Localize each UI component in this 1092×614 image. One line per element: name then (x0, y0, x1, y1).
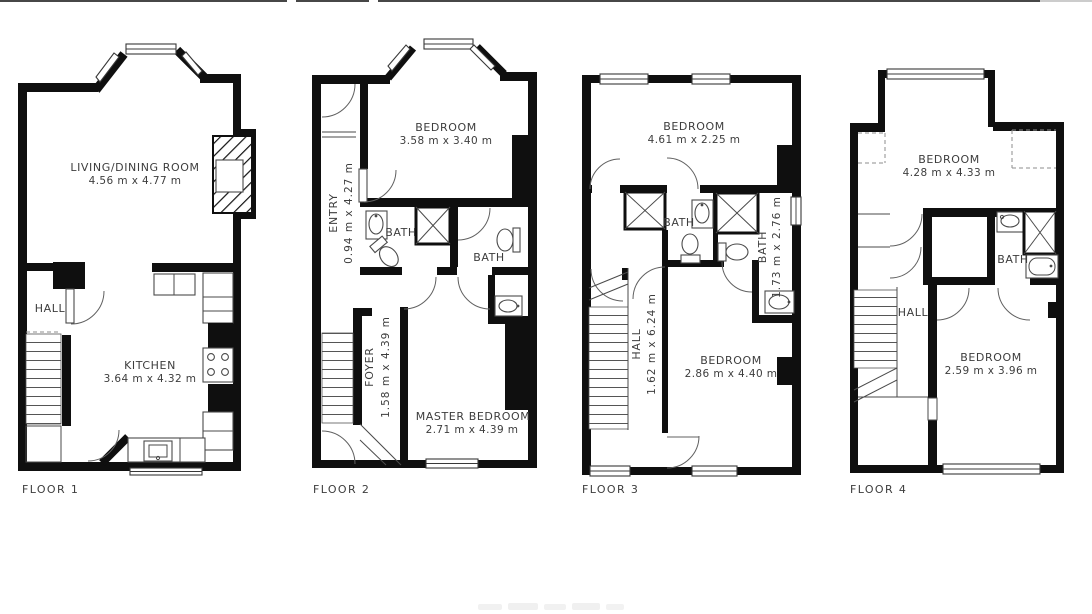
bedroom-dims: 3.58 m x 3.40 m (400, 135, 493, 147)
toilet-icon (370, 236, 402, 270)
bedroom-dims: 4.28 m x 4.33 m (903, 167, 996, 179)
bath-label: BATH (756, 231, 769, 263)
bath-label: BATH (385, 226, 417, 239)
floor-plan-canvas: LIVING/DINING ROOM 4.56 m x 4.77 m HALL … (0, 0, 1092, 614)
stairs (589, 268, 628, 430)
bath-dims: 1.73 m x 2.76 m (771, 196, 783, 298)
bedroom-dims: 2.86 m x 4.40 m (685, 368, 778, 380)
bedroom-label: BEDROOM (960, 351, 1022, 364)
watermark-faint (478, 603, 624, 610)
shower-icon (625, 192, 665, 229)
floor-1-plan: LIVING/DINING ROOM 4.56 m x 4.77 m HALL … (18, 44, 256, 496)
sink-icon (495, 296, 522, 316)
bedroom-dims: 2.59 m x 3.96 m (945, 365, 1038, 377)
master-bedroom-doors (404, 277, 490, 309)
entry-label: ENTRY (327, 193, 340, 233)
stairs (854, 287, 928, 402)
bedroom-label: BEDROOM (918, 153, 980, 166)
window (426, 459, 478, 468)
bedroom-label: BEDROOM (663, 120, 725, 133)
hall-label: HALL (35, 302, 66, 315)
bath-label: BATH (997, 253, 1029, 266)
kitchen-dims: 3.64 m x 4.32 m (104, 373, 197, 385)
stairs-door (322, 431, 355, 464)
floor-4-plan: BEDROOM 4.28 m x 4.33 m BATH HALL BEDROO… (850, 69, 1064, 496)
sink-icon (692, 200, 713, 228)
shower-icon (416, 207, 450, 244)
floor-1-label: FLOOR 1 (22, 483, 79, 496)
kitchen-label: KITCHEN (124, 359, 176, 372)
fireplace (213, 136, 252, 213)
floor-2-plan: BEDROOM 3.58 m x 3.40 m ENTRY 0.94 m x 4… (312, 39, 537, 496)
bay-window (388, 39, 495, 71)
living-dining-dims: 4.56 m x 4.77 m (89, 175, 182, 187)
bathtub-icon (1026, 255, 1058, 278)
master-bedroom-label: MASTER BEDROOM (416, 410, 531, 423)
hall-label: HALL (898, 306, 929, 319)
floorplan-page: LIVING/DINING ROOM 4.56 m x 4.77 m HALL … (0, 0, 1092, 614)
foyer-dims: 1.58 m x 4.39 m (380, 316, 392, 418)
floor-3-label: FLOOR 3 (582, 483, 639, 496)
bath-door (458, 208, 490, 240)
sink-icon (366, 211, 387, 239)
bedroom-door (359, 169, 396, 202)
entry-dims: 0.94 m x 4.27 m (343, 162, 355, 264)
entry-door (322, 84, 355, 117)
kitchen-sink-icon (144, 441, 172, 461)
window (130, 468, 202, 475)
shower-icon (716, 193, 758, 233)
entry-landing-lines (322, 132, 356, 137)
living-dining-label: LIVING/DINING ROOM (70, 161, 199, 174)
foyer-label: FOYER (363, 347, 376, 387)
hall-dims: 1.62 m x 6.24 m (646, 293, 658, 395)
hall-label: HALL (630, 328, 643, 359)
toilet-icon (497, 228, 520, 252)
stove-icon (203, 348, 233, 382)
shower-icon (1024, 211, 1056, 254)
bath-label: BATH (473, 251, 505, 264)
hall-door (66, 289, 104, 324)
floor-3-plan: BEDROOM 4.61 m x 2.25 m BATH BATH 1.73 m… (582, 74, 801, 496)
floor-2-label: FLOOR 2 (313, 483, 370, 496)
master-bedroom-dims: 2.71 m x 4.39 m (426, 424, 519, 436)
top-edge-line (0, 0, 1092, 2)
floor-4-label: FLOOR 4 (850, 483, 907, 496)
bath-label: BATH (663, 216, 695, 229)
bedroom-label: BEDROOM (700, 354, 762, 367)
stairs (26, 332, 61, 462)
toilet-icon (718, 243, 748, 261)
toilet-icon (681, 234, 700, 263)
bedroom-label: BEDROOM (415, 121, 477, 134)
bedroom-dims: 4.61 m x 2.25 m (648, 134, 741, 146)
sink-icon (997, 212, 1024, 232)
